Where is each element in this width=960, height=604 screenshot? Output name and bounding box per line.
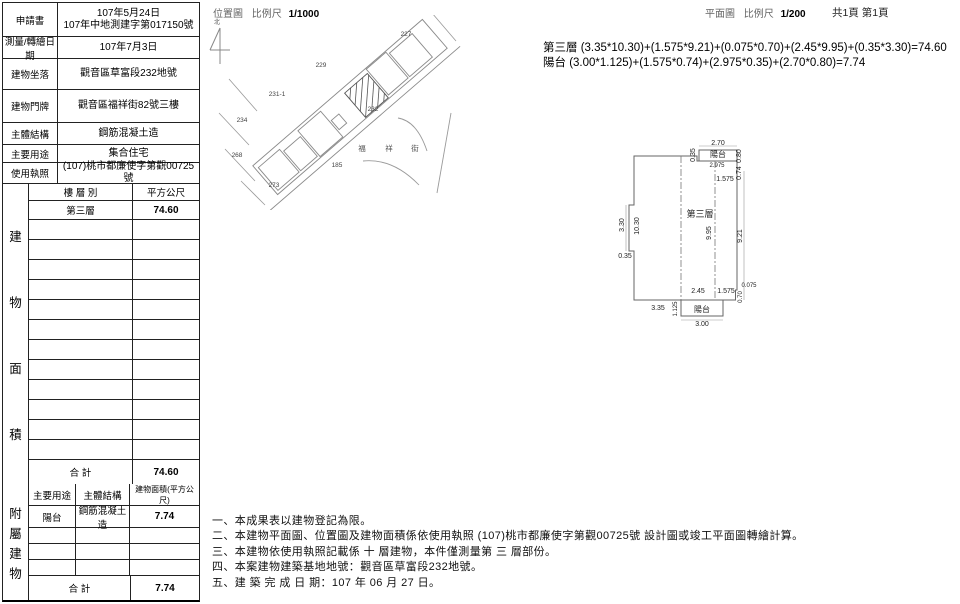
main-structure: 鋼筋混凝土造 <box>58 123 199 144</box>
page-count: 共1頁 第1頁 <box>832 5 889 20</box>
table-row <box>29 400 199 420</box>
dim-label: 9.21 <box>737 229 744 243</box>
row-label: 使用執照 <box>3 163 58 183</box>
total-label: 合 計 <box>29 460 133 484</box>
empty-cell <box>29 440 133 459</box>
side-label-char: 物 <box>9 292 22 311</box>
table-row <box>29 420 199 440</box>
empty-cell <box>130 544 199 559</box>
floor-name: 第三層 <box>29 201 133 219</box>
dim-label: 2.975 <box>709 163 725 169</box>
empty-cell <box>29 420 133 439</box>
column-header-row: 樓 層 別 平方公尺 <box>29 184 199 201</box>
empty-cell <box>133 220 199 239</box>
side-label-char: 物 <box>9 563 22 582</box>
dim-label: 2.70 <box>711 140 725 147</box>
empty-cell <box>133 340 199 359</box>
note-line: 五、建 築 完 成 日 期：107 年 06 月 27 日。 <box>212 576 804 591</box>
dim-label: 0.35 <box>690 148 697 162</box>
street-name: 福 祥 街 <box>358 143 419 153</box>
side-label-char: 建 <box>9 226 22 245</box>
col-header-area: 建物面積(平方公尺) <box>130 484 199 505</box>
row-label: 建物門牌 <box>3 90 58 122</box>
parcel-label: 273 <box>269 182 280 189</box>
building-area-section: 建 物 面 積 樓 層 別 平方公尺 第三層 74.60 <box>3 184 199 484</box>
row-value: 107年5月24日 107年中地測建字第017150號 <box>58 3 199 36</box>
location-map: 227 229 231-1 234 268 273 232 185 福 祥 街 <box>205 15 465 210</box>
dim-label: 0.075 <box>741 283 757 289</box>
empty-cell <box>133 440 199 459</box>
annex-structure: 鋼筋混凝土造 <box>76 506 130 527</box>
formula-floor3: 第三層 (3.35*10.30)+(1.575*9.21)+(0.075*0.7… <box>543 41 947 56</box>
empty-cell <box>29 560 76 575</box>
empty-cell <box>29 400 133 419</box>
formula-balcony: 陽台 (3.00*1.125)+(1.575*0.74)+(2.975*0.35… <box>543 56 947 71</box>
row-label: 主體結構 <box>3 123 58 144</box>
empty-cell <box>133 320 199 339</box>
empty-cell <box>133 280 199 299</box>
room-label: 第三層 <box>686 208 713 219</box>
empty-cell <box>29 220 133 239</box>
parcel-label: 268 <box>232 152 243 159</box>
empty-cell <box>130 528 199 543</box>
hatch-lines <box>345 74 389 118</box>
dim-label: 1.575 <box>717 288 735 295</box>
empty-cell <box>133 420 199 439</box>
floor-plan-label: 平面圖 <box>705 9 735 20</box>
building-info-table: 申請書 107年5月24日 107年中地測建字第017150號 測量/轉繪日期 … <box>2 2 200 602</box>
parcel-band <box>239 15 460 210</box>
row-label: 申請書 <box>3 3 58 36</box>
empty-cell <box>29 280 133 299</box>
empty-cell <box>29 260 133 279</box>
floor-scale-value: 1/200 <box>781 9 806 20</box>
side-label-char: 建 <box>9 543 22 562</box>
building-area-side-label: 建 物 面 積 <box>3 184 29 484</box>
col-header-floor: 樓 層 別 <box>29 184 133 200</box>
annex-use: 陽台 <box>29 506 76 527</box>
parcel-label: 231-1 <box>269 91 286 98</box>
balcony-label-bottom: 陽台 <box>694 304 710 314</box>
table-row: 第三層 74.60 <box>29 201 199 220</box>
table-row <box>29 220 199 240</box>
table-row <box>29 440 199 460</box>
parcel-label: 227 <box>401 31 412 38</box>
side-label-char: 附 <box>9 503 22 522</box>
empty-cell <box>133 260 199 279</box>
side-label-char: 屬 <box>9 523 22 542</box>
table-row: 測量/轉繪日期 107年7月3日 <box>3 37 199 59</box>
total-label: 合 計 <box>29 576 131 600</box>
table-row <box>29 280 199 300</box>
dim-label: 10.30 <box>634 217 641 235</box>
dim-label: 1.575 <box>716 176 734 183</box>
main-use: 集合住宅 <box>58 145 199 162</box>
parcel-label: 229 <box>316 62 327 69</box>
empty-cell <box>130 560 199 575</box>
annex-area-value: 7.74 <box>130 506 199 527</box>
row-label: 測量/轉繪日期 <box>3 37 58 58</box>
dim-label: 1.125 <box>673 301 679 317</box>
building-area-rows: 樓 層 別 平方公尺 第三層 74.60 <box>29 184 199 484</box>
scale-label: 比例尺 <box>744 9 774 20</box>
note-line: 四、本案建物建築基地地號：觀音區草富段232地號。 <box>212 560 804 575</box>
parcel-label-subject: 232 <box>368 106 379 113</box>
empty-cell <box>76 560 130 575</box>
table-row: 陽台 鋼筋混凝土造 7.74 <box>29 506 199 528</box>
side-label-char: 積 <box>9 424 22 443</box>
parcel-label: 185 <box>332 162 343 169</box>
col-header-area: 平方公尺 <box>133 184 199 200</box>
annex-total-value: 7.74 <box>131 576 199 600</box>
table-row: 使用執照 (107)桃市都廉使字第觀00725號 <box>3 163 199 184</box>
table-row <box>29 340 199 360</box>
application-date: 107年5月24日 <box>97 8 160 20</box>
table-row <box>29 560 199 576</box>
building-location: 觀音區草富段232地號 <box>58 59 199 89</box>
empty-cell <box>29 360 133 379</box>
side-label-char: 面 <box>9 358 22 377</box>
note-line: 二、本建物平面圖、位置圖及建物面積係依使用執照 (107)桃市都廉使字第觀007… <box>212 529 804 544</box>
street-char: 祥 <box>385 143 393 153</box>
application-number: 107年中地測建字第017150號 <box>63 20 193 32</box>
dim-label: 3.00 <box>695 321 709 328</box>
floor-plan-header: 平面圖 比例尺 1/200 <box>705 5 806 20</box>
empty-cell <box>29 340 133 359</box>
use-permit-number: (107)桃市都廉使字第觀00725號 <box>58 163 199 183</box>
empty-cell <box>133 400 199 419</box>
empty-cell <box>133 380 199 399</box>
table-row: 主體結構 鋼筋混凝土造 <box>3 123 199 145</box>
row-label: 主要用途 <box>3 145 58 162</box>
empty-cell <box>29 380 133 399</box>
subject-building-hatched <box>345 74 389 118</box>
row-label: 建物坐落 <box>3 59 58 89</box>
notes-list: 一、本成果表以建物登記為限。 二、本建物平面圖、位置圖及建物面積係依使用執照 (… <box>212 514 804 591</box>
empty-cell <box>29 300 133 319</box>
table-row: 建物門牌 觀音區福祥街82號三樓 <box>3 90 199 123</box>
table-row <box>29 240 199 260</box>
empty-cell <box>76 528 130 543</box>
dim-label: 0.35 <box>618 253 632 260</box>
empty-cell <box>76 544 130 559</box>
empty-cell <box>29 240 133 259</box>
empty-cell <box>133 360 199 379</box>
dim-label: 0.70 <box>738 291 744 303</box>
table-row <box>29 320 199 340</box>
parcel-label: 234 <box>237 117 248 124</box>
total-row: 合 計 7.74 <box>29 576 199 600</box>
empty-cell <box>133 240 199 259</box>
dim-label: 2.45 <box>691 288 705 295</box>
annex-building-section: 附 屬 建 物 主要用途 主體結構 建物面積(平方公尺) 陽台 鋼筋混凝土造 7… <box>3 484 199 600</box>
dim-label: 0.80 <box>736 149 743 163</box>
empty-cell <box>29 528 76 543</box>
annex-rows: 主要用途 主體結構 建物面積(平方公尺) 陽台 鋼筋混凝土造 7.74 合 計 … <box>29 484 199 600</box>
empty-cell <box>29 544 76 559</box>
survey-date: 107年7月3日 <box>58 37 199 58</box>
col-header-use: 主要用途 <box>29 484 76 505</box>
table-row <box>29 380 199 400</box>
table-row <box>29 260 199 280</box>
table-row: 建物坐落 觀音區草富段232地號 <box>3 59 199 90</box>
total-area-value: 74.60 <box>133 460 199 484</box>
table-row: 申請書 107年5月24日 107年中地測建字第017150號 <box>3 3 199 37</box>
note-line: 一、本成果表以建物登記為限。 <box>212 514 804 529</box>
floor-plan-drawing: 2.70 陽台 0.35 0.80 2.975 0.74 1.575 第三層 3… <box>610 135 770 335</box>
empty-cell <box>133 300 199 319</box>
dim-label: 3.35 <box>651 305 665 312</box>
table-row <box>29 360 199 380</box>
dim-label: 9.95 <box>706 226 713 240</box>
building-survey-document: 申請書 107年5月24日 107年中地測建字第017150號 測量/轉繪日期 … <box>0 0 960 604</box>
building-address: 觀音區福祥街82號三樓 <box>58 90 199 122</box>
floor-area-value: 74.60 <box>133 201 199 219</box>
dim-label: 3.30 <box>619 218 626 232</box>
annex-side-label: 附 屬 建 物 <box>3 484 29 600</box>
total-row: 合 計 74.60 <box>29 460 199 484</box>
table-row <box>29 300 199 320</box>
street-char: 街 <box>411 143 419 153</box>
empty-cell <box>29 320 133 339</box>
balcony-label-top: 陽台 <box>710 149 726 159</box>
dim-label: 0.74 <box>736 166 743 180</box>
street-curves <box>363 113 451 193</box>
table-row <box>29 528 199 544</box>
street-char: 福 <box>358 144 366 153</box>
table-row <box>29 544 199 560</box>
note-line: 三、本建物依使用執照記載係 十 層建物，本件僅測量第 三 層部份。 <box>212 545 804 560</box>
area-calculation-formulas: 第三層 (3.35*10.30)+(1.575*9.21)+(0.075*0.7… <box>543 41 947 70</box>
